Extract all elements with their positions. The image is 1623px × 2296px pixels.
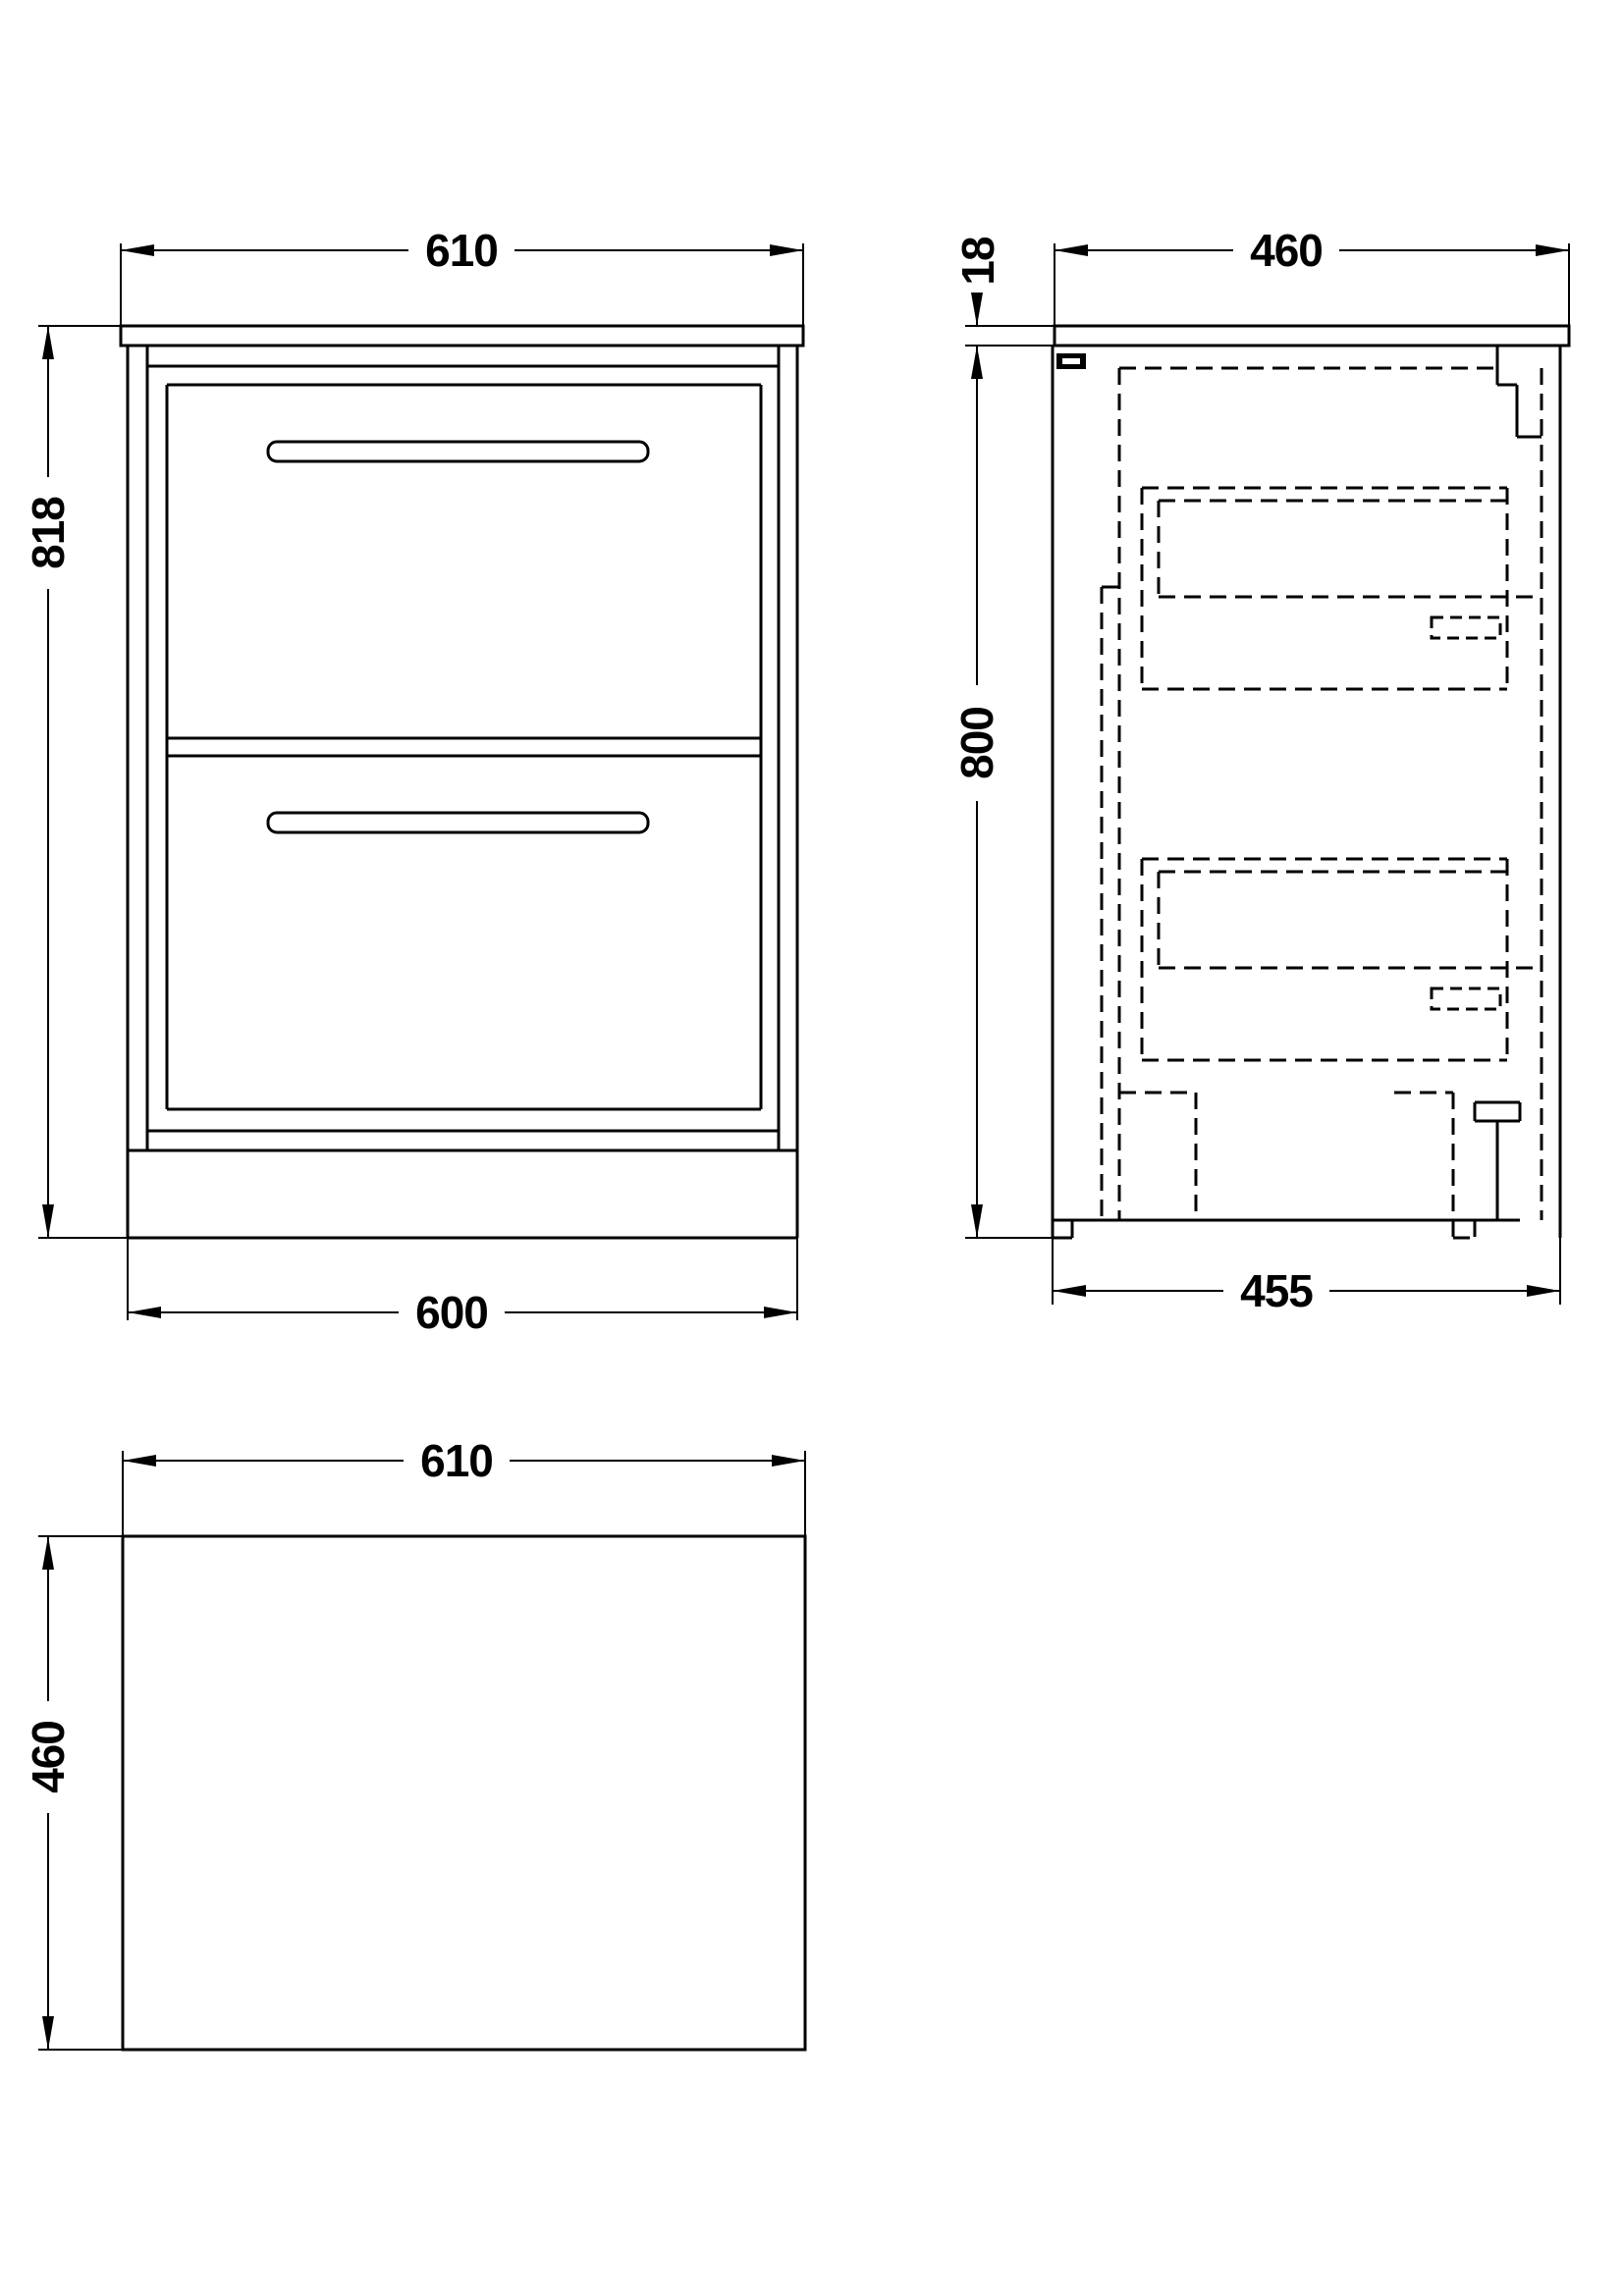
plan-dim-depth-arrow-bottom	[42, 2016, 54, 2050]
side-dim-18-extension-lines	[965, 326, 1055, 346]
side-drawer1-runner-hidden	[1432, 617, 1500, 638]
side-dim-bottom-label: 455	[1240, 1265, 1313, 1316]
front-worktop	[121, 326, 803, 346]
front-dim-bottom-arrow-left	[128, 1307, 161, 1318]
front-cabinet-frame-lines	[128, 346, 797, 1238]
front-dim-height-label: 818	[23, 497, 74, 569]
front-view	[121, 326, 803, 1238]
technical-drawing-sheet: 610 818 600 460	[0, 0, 1623, 2296]
front-dim-top-arrow-right	[770, 244, 803, 256]
side-fixing-bracket-slot	[1062, 358, 1080, 364]
front-dim-bottom-arrow-right	[764, 1307, 797, 1318]
side-dim-height-arrow-bottom	[971, 1204, 983, 1238]
plan-dim-width: 610	[123, 1435, 805, 1536]
front-dim-top-arrow-left	[121, 244, 154, 256]
side-dim-top-label: 460	[1250, 225, 1323, 276]
front-drawer2-handle	[268, 813, 648, 832]
front-dim-height-arrow-top	[42, 326, 54, 359]
side-drawer1-hidden-box	[1142, 488, 1542, 689]
side-dim-bottom-arrow-left	[1053, 1285, 1086, 1297]
front-drawer1-handle	[268, 442, 648, 461]
plan-dim-width-arrow-right	[772, 1455, 805, 1467]
side-dim-top-depth: 460	[1055, 225, 1569, 326]
side-dim-bottom-depth: 455	[1053, 1238, 1560, 1316]
front-dim-bottom-label: 600	[415, 1287, 488, 1338]
plan-dim-width-label: 610	[420, 1435, 493, 1486]
plan-view	[123, 1536, 805, 2050]
side-dim-top-arrow-right	[1536, 244, 1569, 256]
side-dim-bottom-arrow-right	[1527, 1285, 1560, 1297]
plan-dim-depth: 460	[23, 1536, 123, 2050]
plan-dim-depth-arrow-top	[42, 1536, 54, 1570]
side-drawer2-hidden-box	[1142, 859, 1542, 1060]
side-drawer2-runner-hidden	[1432, 988, 1500, 1009]
vanity-unit-drawing: 610 818 600 460	[0, 0, 1623, 2296]
side-cabinet-outline	[1053, 346, 1560, 1238]
front-dim-height-extension-lines	[38, 326, 128, 1238]
side-dim-top-arrow-left	[1055, 244, 1088, 256]
front-dim-top-width: 610	[121, 225, 803, 326]
plan-dim-depth-label: 460	[23, 1721, 74, 1793]
side-worktop	[1055, 326, 1569, 346]
side-dim-height-label: 800	[951, 707, 1002, 779]
side-dim-18-label: 18	[952, 237, 1003, 286]
front-dim-bottom-width: 600	[128, 1238, 797, 1338]
side-view	[1053, 326, 1569, 1238]
side-dim-worktop-thickness: 18	[952, 237, 1055, 379]
plan-dim-width-arrow-left	[123, 1455, 156, 1467]
front-drawer-outlines	[167, 385, 761, 1109]
plan-worktop-outline	[123, 1536, 805, 2050]
side-dim-height: 800	[951, 346, 1053, 1238]
side-dim-18-arrow-down	[971, 293, 983, 326]
front-dim-height-arrow-bottom	[42, 1204, 54, 1238]
front-dim-height: 818	[23, 326, 128, 1238]
front-dim-top-label: 610	[425, 225, 498, 276]
